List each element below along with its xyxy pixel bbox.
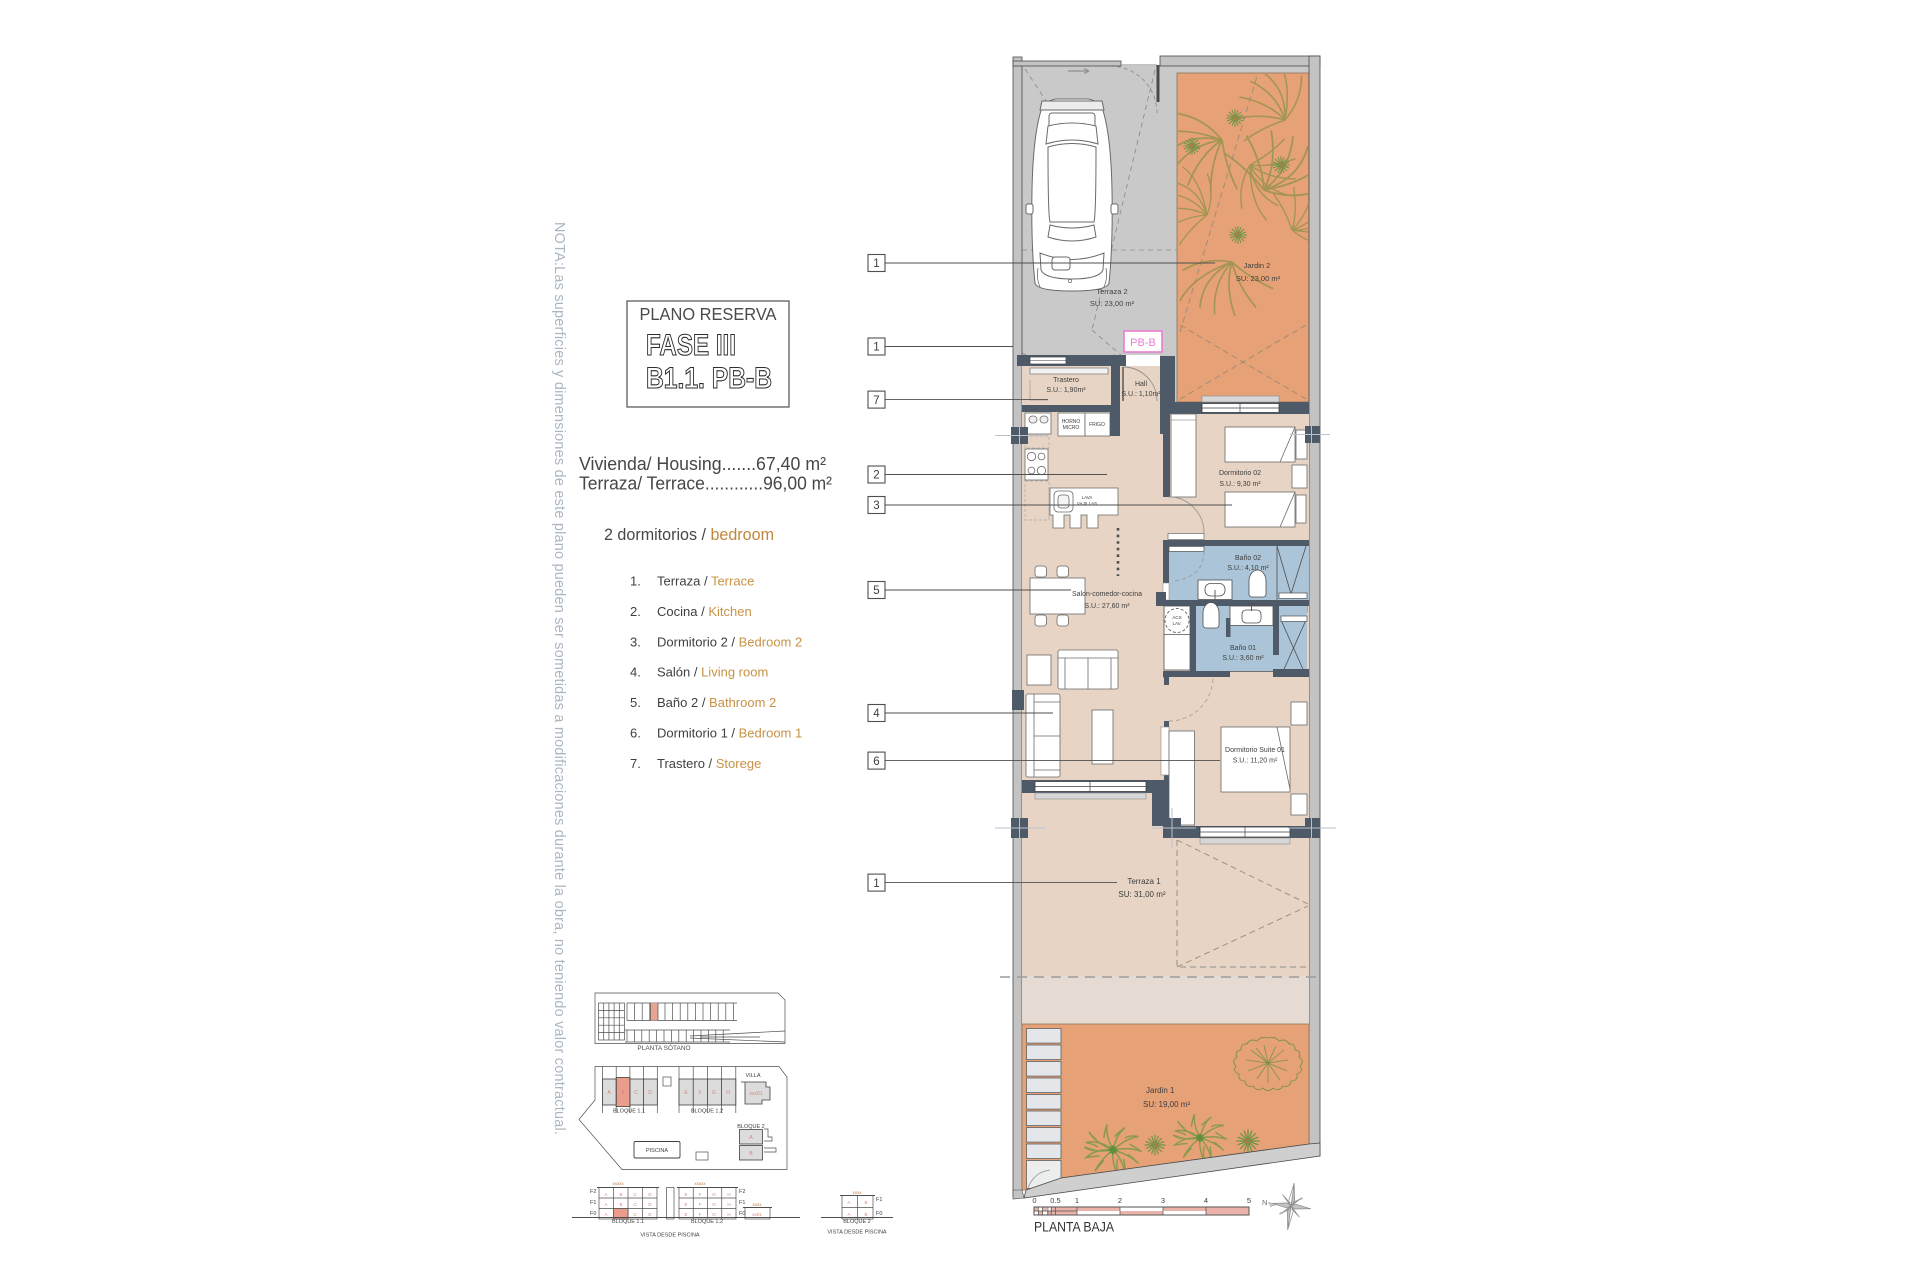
svg-text:1.: 1. xyxy=(630,574,641,589)
svg-text:G: G xyxy=(712,1192,716,1197)
svg-text:1: 1 xyxy=(873,342,879,354)
svg-text:Baño 01: Baño 01 xyxy=(1230,645,1256,652)
svg-text:F0: F0 xyxy=(590,1211,596,1217)
svg-text:LAVA: LAVA xyxy=(1082,495,1093,500)
svg-text:E: E xyxy=(684,1212,687,1217)
svg-text:C: C xyxy=(634,1090,638,1096)
svg-text:SU: 31,00 m²: SU: 31,00 m² xyxy=(1118,890,1165,899)
svg-text:xxxxx: xxxxx xyxy=(694,1181,706,1186)
svg-text:6.: 6. xyxy=(630,726,641,741)
svg-text:Dormitorio 1 / Bedroom 1: Dormitorio 1 / Bedroom 1 xyxy=(657,726,802,741)
svg-text:4.: 4. xyxy=(630,665,641,680)
svg-text:E: E xyxy=(684,1192,687,1197)
svg-text:A: A xyxy=(847,1212,850,1217)
svg-text:0.5: 0.5 xyxy=(1050,1196,1060,1205)
svg-text:F2: F2 xyxy=(739,1189,745,1195)
svg-text:SU: 23,00 m²: SU: 23,00 m² xyxy=(1236,274,1281,283)
svg-text:NOTA:Las superficies y dimensi: NOTA:Las superficies y dimensiones de es… xyxy=(551,222,567,1135)
svg-text:xxx01: xxx01 xyxy=(749,1091,762,1097)
svg-text:5: 5 xyxy=(873,585,879,597)
svg-text:2: 2 xyxy=(873,470,879,482)
svg-text:E: E xyxy=(684,1202,687,1207)
svg-text:2.: 2. xyxy=(630,604,641,619)
svg-text:xx01: xx01 xyxy=(752,1212,762,1217)
svg-text:VILLA: VILLA xyxy=(746,1073,761,1079)
svg-text:H: H xyxy=(727,1192,730,1197)
svg-text:4: 4 xyxy=(873,708,880,720)
svg-text:Terraza / Terrace: Terraza / Terrace xyxy=(657,574,754,589)
svg-text:xxxxx: xxxxx xyxy=(612,1181,624,1186)
svg-text:Jardin 1: Jardin 1 xyxy=(1146,1086,1175,1095)
svg-text:1: 1 xyxy=(873,878,879,890)
svg-text:B1.1. PB-B: B1.1. PB-B xyxy=(646,362,772,395)
svg-text:F: F xyxy=(698,1090,701,1096)
svg-text:PLANTA BAJA: PLANTA BAJA xyxy=(1034,1220,1114,1235)
svg-text:B: B xyxy=(864,1200,867,1205)
svg-text:F2: F2 xyxy=(590,1189,596,1195)
svg-text:BLOQUE 1.2: BLOQUE 1.2 xyxy=(691,1219,723,1225)
svg-text:G: G xyxy=(712,1212,716,1217)
svg-text:Dormitorio 02: Dormitorio 02 xyxy=(1219,470,1261,477)
svg-text:Hall: Hall xyxy=(1135,381,1148,388)
svg-text:BLOQUE 1.1: BLOQUE 1.1 xyxy=(612,1219,644,1225)
svg-text:3: 3 xyxy=(1161,1196,1165,1205)
svg-text:2: 2 xyxy=(1118,1196,1122,1205)
svg-text:1: 1 xyxy=(873,258,879,270)
svg-text:FRIGO: FRIGO xyxy=(1089,422,1105,428)
svg-text:Trastero / Storege: Trastero / Storege xyxy=(657,756,761,771)
svg-text:2 dormitorios / bedroom: 2 dormitorios / bedroom xyxy=(604,526,774,544)
svg-text:1: 1 xyxy=(1075,1196,1079,1205)
svg-text:H: H xyxy=(726,1090,730,1096)
svg-text:Trastero: Trastero xyxy=(1053,377,1079,384)
svg-text:F0: F0 xyxy=(876,1211,882,1217)
svg-text:Salon-comedor-cocina: Salon-comedor-cocina xyxy=(1072,591,1142,598)
svg-text:B: B xyxy=(864,1212,867,1217)
svg-text:G: G xyxy=(712,1202,716,1207)
svg-text:Jardin 2: Jardin 2 xyxy=(1244,261,1271,270)
svg-text:VISTA DESDE PISCINA: VISTA DESDE PISCINA xyxy=(640,1233,700,1239)
svg-text:BLOQUE 1.1: BLOQUE 1.1 xyxy=(613,1109,645,1115)
svg-text:5.: 5. xyxy=(630,695,641,710)
svg-text:PB-B: PB-B xyxy=(1130,337,1156,349)
svg-text:H: H xyxy=(727,1202,730,1207)
svg-text:F1: F1 xyxy=(739,1200,745,1206)
svg-text:D: D xyxy=(648,1090,652,1096)
svg-text:3.: 3. xyxy=(630,634,641,649)
svg-text:F: F xyxy=(699,1192,702,1197)
svg-text:BLOQUE 2: BLOQUE 2 xyxy=(843,1219,871,1225)
svg-text:xxxx: xxxx xyxy=(853,1190,863,1195)
svg-text:Baño 02: Baño 02 xyxy=(1235,555,1261,562)
svg-text:B: B xyxy=(619,1192,622,1197)
svg-text:S.U.: 27,60 m²: S.U.: 27,60 m² xyxy=(1084,603,1130,610)
svg-text:7: 7 xyxy=(873,395,879,407)
svg-text:6: 6 xyxy=(873,756,879,768)
svg-text:A: A xyxy=(847,1200,850,1205)
svg-text:Terraza 2: Terraza 2 xyxy=(1096,287,1127,296)
svg-text:SU: 19,00 m²: SU: 19,00 m² xyxy=(1143,1100,1190,1109)
svg-text:S.U.: 4,10 m²: S.U.: 4,10 m² xyxy=(1227,565,1269,572)
svg-text:F: F xyxy=(699,1212,702,1217)
svg-text:4: 4 xyxy=(1204,1196,1208,1205)
svg-text:PLANO RESERVA: PLANO RESERVA xyxy=(640,304,777,324)
svg-text:F1: F1 xyxy=(876,1197,882,1203)
svg-text:A: A xyxy=(604,1212,607,1217)
svg-text:S.U.: 11,20 m²: S.U.: 11,20 m² xyxy=(1233,758,1278,765)
svg-text:S.U.: 3,60 m²: S.U.: 3,60 m² xyxy=(1222,655,1264,662)
svg-text:PLANTA SÓTANO: PLANTA SÓTANO xyxy=(637,1043,690,1052)
svg-text:Baño 2 / Bathroom 2: Baño 2 / Bathroom 2 xyxy=(657,695,776,710)
svg-text:S.U.: 1,10m²: S.U.: 1,10m² xyxy=(1121,391,1161,398)
svg-text:Dormitorio 2 / Bedroom 2: Dormitorio 2 / Bedroom 2 xyxy=(657,634,802,649)
svg-text:0: 0 xyxy=(1032,1196,1036,1205)
svg-text:SU: 23,00 m²: SU: 23,00 m² xyxy=(1090,299,1135,308)
svg-text:S.U.: 9,30 m²: S.U.: 9,30 m² xyxy=(1219,481,1261,488)
svg-text:LAV.: LAV. xyxy=(1172,621,1181,626)
svg-text:Cocina / Kitchen: Cocina / Kitchen xyxy=(657,604,752,619)
svg-text:BLOQUE 1.2: BLOQUE 1.2 xyxy=(691,1109,723,1115)
svg-text:S.U.: 1,90m²: S.U.: 1,90m² xyxy=(1046,387,1086,394)
svg-text:A: A xyxy=(604,1202,607,1207)
svg-text:Vivienda/ Housing.......67,40: Vivienda/ Housing.......67,40 m² xyxy=(579,453,826,474)
svg-text:F1: F1 xyxy=(590,1200,596,1206)
svg-text:A: A xyxy=(604,1192,607,1197)
svg-text:F: F xyxy=(699,1202,702,1207)
svg-text:MICRO: MICRO xyxy=(1063,425,1080,431)
svg-text:Terraza 1: Terraza 1 xyxy=(1127,877,1161,886)
svg-text:FASE III: FASE III xyxy=(646,329,736,362)
svg-text:Dormitorio Suite 01: Dormitorio Suite 01 xyxy=(1225,747,1285,754)
svg-text:PISCINA: PISCINA xyxy=(646,1148,668,1154)
svg-text:xxxx: xxxx xyxy=(753,1202,763,1207)
svg-text:H: H xyxy=(727,1212,730,1217)
svg-text:Terraza/ Terrace............96: Terraza/ Terrace............96,00 m² xyxy=(579,473,832,494)
svg-text:B: B xyxy=(619,1202,622,1207)
svg-text:VISTA DESDE PISCINA: VISTA DESDE PISCINA xyxy=(827,1230,887,1236)
svg-text:5: 5 xyxy=(1247,1196,1251,1205)
svg-text:G: G xyxy=(712,1090,716,1096)
svg-text:N: N xyxy=(1262,1198,1267,1207)
svg-text:BLOQUE 2: BLOQUE 2 xyxy=(737,1124,765,1130)
svg-text:7.: 7. xyxy=(630,756,641,771)
svg-text:Salón / Living room: Salón / Living room xyxy=(657,665,768,680)
svg-text:3: 3 xyxy=(873,500,879,512)
svg-text:F0: F0 xyxy=(739,1211,745,1217)
svg-text:ACS: ACS xyxy=(1172,615,1181,620)
